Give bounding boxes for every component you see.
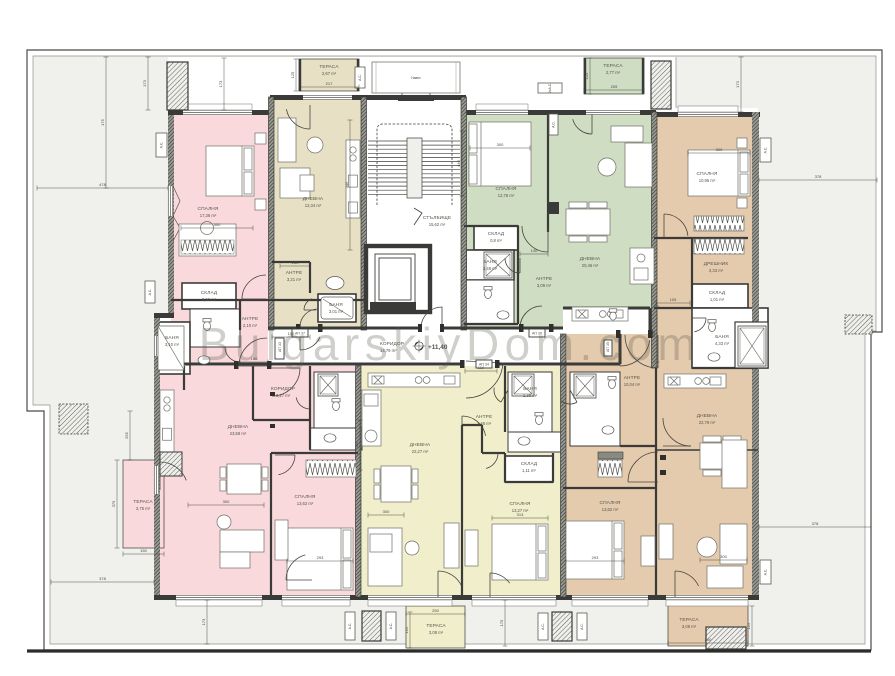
svg-text:3,21 m²: 3,21 m²: [287, 277, 302, 282]
svg-text:A.C.: A.C.: [160, 142, 164, 149]
svg-text:1,01 m²: 1,01 m²: [710, 297, 725, 302]
svg-text:A.C.: A.C.: [552, 121, 556, 128]
svg-text:205: 205: [611, 84, 618, 89]
svg-text:13,62 m²: 13,62 m²: [602, 507, 619, 512]
svg-text:Навес: Навес: [411, 76, 421, 80]
svg-text:СКЛАД: СКЛАД: [709, 290, 726, 296]
svg-text:ТЕРАСА: ТЕРАСА: [133, 499, 153, 505]
svg-text:1,38 m²: 1,38 m²: [523, 393, 538, 398]
svg-text:ТЕРАСА: ТЕРАСА: [319, 64, 339, 70]
svg-text:ТЕРАСА: ТЕРАСА: [679, 617, 699, 623]
svg-text:A.C.: A.C.: [389, 623, 393, 630]
svg-text:20,46 m²: 20,46 m²: [582, 263, 599, 268]
svg-text:15,62 m²: 15,62 m²: [429, 222, 446, 227]
svg-text:СПАЛНЯ: СПАЛНЯ: [295, 494, 316, 500]
svg-text:13,62 m²: 13,62 m²: [297, 501, 314, 506]
svg-text:10,04 m²: 10,04 m²: [624, 382, 641, 387]
svg-text:300: 300: [716, 147, 723, 152]
svg-text:17,36 m²: 17,36 m²: [200, 213, 217, 218]
svg-text:105: 105: [670, 297, 677, 302]
svg-text:150: 150: [140, 548, 147, 553]
svg-text:АНТРЕ: АНТРЕ: [286, 270, 303, 276]
svg-text:БАНЯ: БАНЯ: [523, 386, 537, 392]
svg-text:ТЕРАСА: ТЕРАСА: [426, 623, 446, 629]
svg-text:ТЕРАСА: ТЕРАСА: [603, 63, 623, 69]
svg-text:125: 125: [404, 626, 409, 633]
svg-text:446: 446: [344, 181, 349, 188]
svg-text:BulgarskiyDom.com: BulgarskiyDom.com: [199, 318, 702, 370]
svg-text:23,58 m²: 23,58 m²: [230, 431, 247, 436]
svg-text:0,92 m²: 0,92 m²: [202, 297, 217, 302]
svg-text:125: 125: [746, 622, 751, 629]
svg-text:СКЛАД: СКЛАД: [488, 231, 505, 237]
svg-text:3,75 m²: 3,75 m²: [136, 506, 151, 511]
svg-text:125: 125: [290, 71, 295, 78]
svg-text:A.C.: A.C.: [148, 289, 152, 296]
svg-text:250: 250: [432, 608, 439, 613]
svg-text:3,48 m²: 3,48 m²: [483, 266, 498, 271]
svg-text:378: 378: [815, 174, 822, 179]
svg-text:217: 217: [326, 81, 333, 86]
svg-text:173: 173: [142, 79, 147, 86]
svg-text:A.C.: A.C.: [764, 569, 768, 576]
svg-text:125: 125: [584, 72, 589, 79]
svg-text:175: 175: [100, 118, 105, 125]
svg-text:АНТРЕ: АНТРЕ: [536, 276, 553, 282]
svg-text:300: 300: [497, 142, 504, 147]
svg-text:313: 313: [517, 512, 524, 517]
svg-text:478: 478: [99, 182, 106, 187]
svg-text:3,08 m²: 3,08 m²: [429, 630, 444, 635]
svg-text:ДНЕВНА: ДНЕВНА: [303, 196, 324, 202]
svg-text:293: 293: [317, 555, 324, 560]
svg-text:22,27 m²: 22,27 m²: [412, 449, 429, 454]
svg-text:2,77 m²: 2,77 m²: [606, 70, 621, 75]
svg-text:A.C.: A.C.: [358, 74, 362, 81]
svg-text:БАНЯ: БАНЯ: [165, 335, 179, 341]
svg-text:ДНЕВНА: ДНЕВНА: [410, 442, 431, 448]
svg-text:10,95 m²: 10,95 m²: [699, 178, 716, 183]
svg-text:260: 260: [705, 637, 712, 642]
svg-text:ДНЕВНА: ДНЕВНА: [580, 256, 601, 262]
svg-text:СПАЛНЯ: СПАЛНЯ: [496, 186, 517, 192]
svg-text:ДНЕВНА: ДНЕВНА: [228, 424, 249, 430]
svg-text:3,33 m²: 3,33 m²: [709, 268, 724, 273]
svg-text:300: 300: [223, 499, 230, 504]
svg-text:2,67 m²: 2,67 m²: [322, 71, 337, 76]
svg-text:СПАЛНЯ: СПАЛНЯ: [600, 500, 621, 506]
svg-text:255: 255: [124, 431, 129, 438]
svg-text:БАНЯ: БАНЯ: [329, 302, 343, 308]
svg-text:173: 173: [735, 80, 740, 87]
svg-text:A.C.: A.C.: [580, 623, 584, 630]
svg-text:173: 173: [218, 80, 223, 87]
svg-text:446: 446: [456, 159, 461, 166]
svg-text:СПАЛНЯ: СПАЛНЯ: [510, 501, 531, 507]
svg-text:300: 300: [720, 554, 727, 559]
svg-text:175: 175: [499, 619, 504, 626]
svg-text:0,8 m²: 0,8 m²: [490, 238, 502, 243]
svg-text:КОРИДОР: КОРИДОР: [271, 386, 295, 392]
svg-text:3,27 m²: 3,27 m²: [276, 393, 291, 398]
svg-text:ДНЕВНА: ДНЕВНА: [697, 413, 718, 419]
svg-text:АНТРЕ: АНТРЕ: [624, 375, 641, 381]
svg-text:БАНЯ: БАНЯ: [483, 259, 497, 265]
svg-text:300: 300: [383, 509, 390, 514]
svg-text:365: 365: [354, 441, 359, 448]
svg-text:3,01 m²: 3,01 m²: [329, 309, 344, 314]
svg-text:173: 173: [201, 618, 206, 625]
svg-text:БАНЯ: БАНЯ: [715, 334, 729, 340]
svg-text:4,33 m²: 4,33 m²: [715, 341, 730, 346]
svg-text:3,46 m²: 3,46 m²: [477, 421, 492, 426]
svg-text:293: 293: [592, 555, 599, 560]
svg-text:2xA.C.: 2xA.C.: [548, 83, 552, 93]
svg-text:22,79 m²: 22,79 m²: [699, 420, 716, 425]
svg-text:СПАЛНЯ: СПАЛНЯ: [198, 206, 219, 212]
svg-text:СТЪЛБИЩЕ: СТЪЛБИЩЕ: [423, 215, 451, 221]
svg-text:A.C.: A.C.: [348, 623, 352, 630]
svg-text:12,34 m²: 12,34 m²: [305, 203, 322, 208]
svg-text:3,10 m²: 3,10 m²: [165, 342, 180, 347]
svg-text:АНТРЕ: АНТРЕ: [476, 414, 493, 420]
svg-text:1,11 m²: 1,11 m²: [522, 468, 536, 473]
svg-text:СПАЛНЯ: СПАЛНЯ: [697, 171, 718, 177]
svg-text:375: 375: [111, 500, 116, 507]
svg-text:130: 130: [292, 260, 299, 265]
svg-text:A.C.: A.C.: [764, 147, 768, 154]
svg-text:12,78 m²: 12,78 m²: [498, 193, 515, 198]
svg-text:ДРЕШНИК: ДРЕШНИК: [704, 261, 729, 267]
svg-text:A.C.: A.C.: [541, 623, 545, 630]
svg-text:130: 130: [531, 248, 538, 253]
svg-text:3,08 m²: 3,08 m²: [682, 624, 697, 629]
svg-text:СКЛАД: СКЛАД: [201, 290, 218, 296]
svg-text:300: 300: [214, 222, 221, 227]
svg-text:378: 378: [99, 576, 106, 581]
svg-text:СКЛАД: СКЛАД: [521, 461, 538, 467]
svg-text:378: 378: [812, 521, 819, 526]
svg-text:3,09 m²: 3,09 m²: [537, 283, 552, 288]
